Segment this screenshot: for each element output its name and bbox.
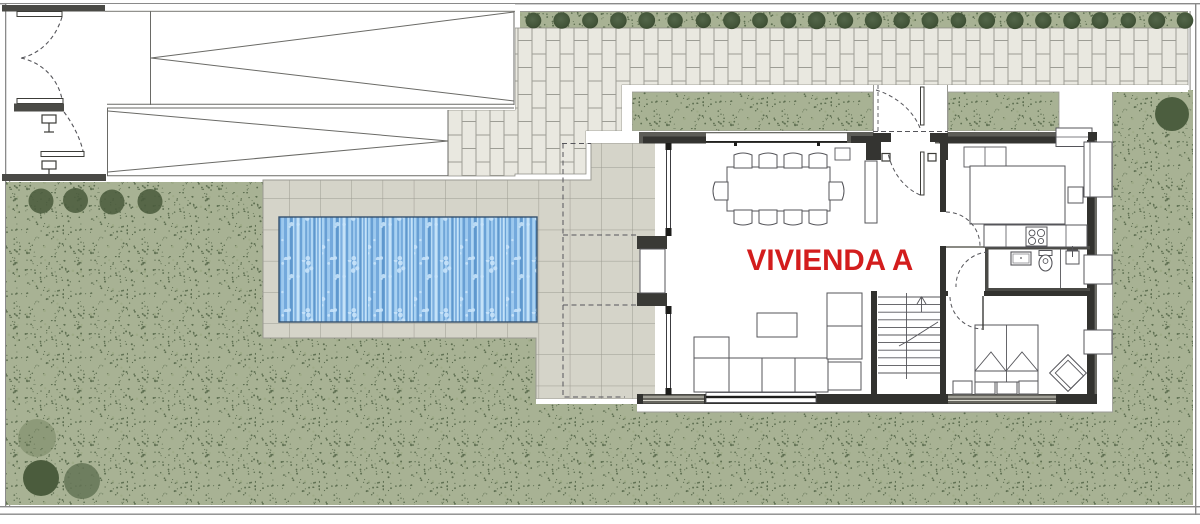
svg-text:VIVIENDA A: VIVIENDA A <box>747 244 914 277</box>
